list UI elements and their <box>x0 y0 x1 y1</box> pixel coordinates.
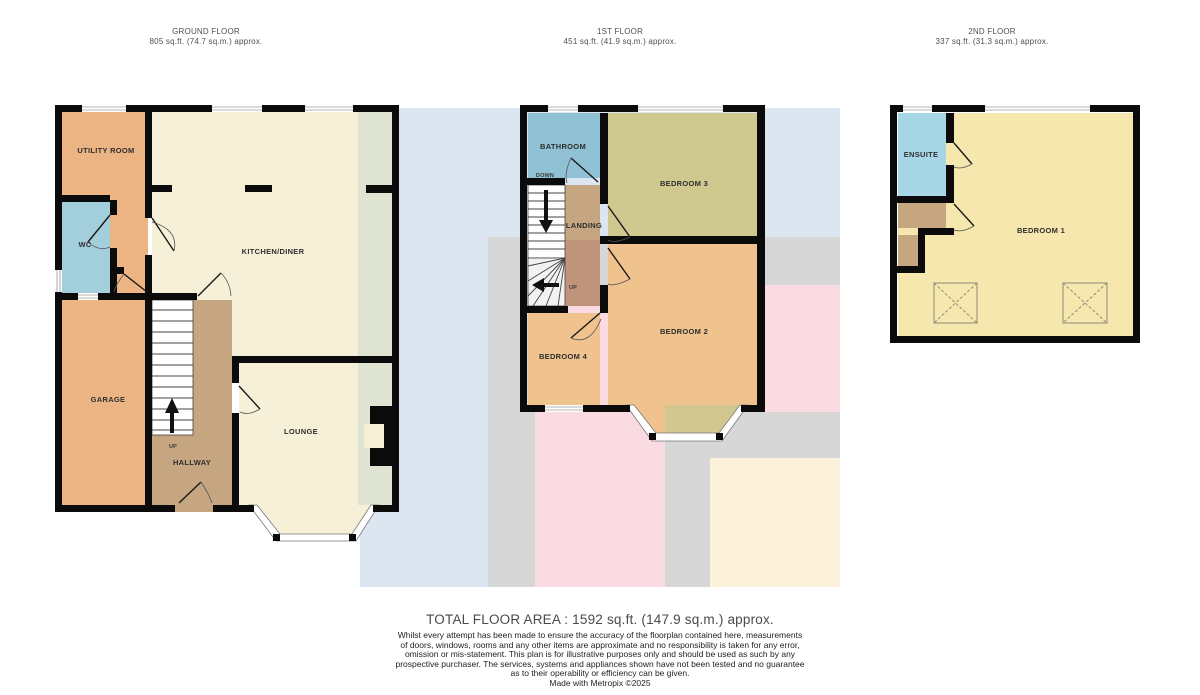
bedroom3-fill <box>608 113 757 236</box>
kitchen-green-strip <box>358 112 392 356</box>
stairs-up-label: UP <box>169 444 177 450</box>
footer: TOTAL FLOOR AREA : 1592 sq.ft. (147.9 sq… <box>0 612 1200 688</box>
room-label-bedroom3: BEDROOM 3 <box>660 179 708 188</box>
room-label-lounge: LOUNGE <box>284 427 318 436</box>
room-label-landing: LANDING <box>566 221 602 230</box>
floorplan-canvas: UTILITY ROOM WC KITCHEN/DINER GARAGE HAL… <box>0 0 1200 695</box>
second-floor-windows <box>903 105 1090 112</box>
bedroom2-fill <box>608 244 757 405</box>
room-label-bathroom: BATHROOM <box>540 142 586 151</box>
room-label-utility: UTILITY ROOM <box>77 146 134 155</box>
front-door-opening <box>175 505 213 512</box>
ground-floor-plan: UTILITY ROOM WC KITCHEN/DINER GARAGE HAL… <box>55 105 399 541</box>
first-floor-plan: BATHROOM DOWN LANDING UP BEDROOM 3 BEDRO… <box>520 105 765 441</box>
room-label-hallway: HALLWAY <box>173 458 211 467</box>
hallway-fill <box>193 300 232 505</box>
room-label-garage: GARAGE <box>91 395 126 404</box>
landing-fill <box>565 185 600 240</box>
room-label-ensuite: ENSUITE <box>904 150 939 159</box>
ground-floor-stairs <box>152 300 193 435</box>
stairs-up-label-first: UP <box>569 285 577 291</box>
landing2-fill-a <box>898 203 946 228</box>
room-label-bedroom2: BEDROOM 2 <box>660 327 708 336</box>
first-floor-stairs <box>528 185 565 306</box>
stairs-down-label: DOWN <box>536 173 554 179</box>
room-label-kitchen: KITCHEN/DINER <box>242 247 305 256</box>
room-label-bedroom1: BEDROOM 1 <box>1017 226 1065 235</box>
room-label-bedroom4: BEDROOM 4 <box>539 352 588 361</box>
landing-lower-fill <box>565 240 600 306</box>
floorplan-page: GROUND FLOOR 805 sq.ft. (74.7 sq.m.) app… <box>0 0 1200 695</box>
lounge-bay-window <box>247 505 380 541</box>
landing2-fill-b <box>898 235 918 266</box>
bedroom2-bay-window <box>623 405 748 441</box>
room-label-wc: WC <box>78 240 91 249</box>
second-floor-plan: ENSUITE BEDROOM 1 <box>890 105 1140 343</box>
metropix-credit: Made with Metropix ©2025 <box>0 679 1200 689</box>
total-floor-area: TOTAL FLOOR AREA : 1592 sq.ft. (147.9 sq… <box>0 612 1200 627</box>
